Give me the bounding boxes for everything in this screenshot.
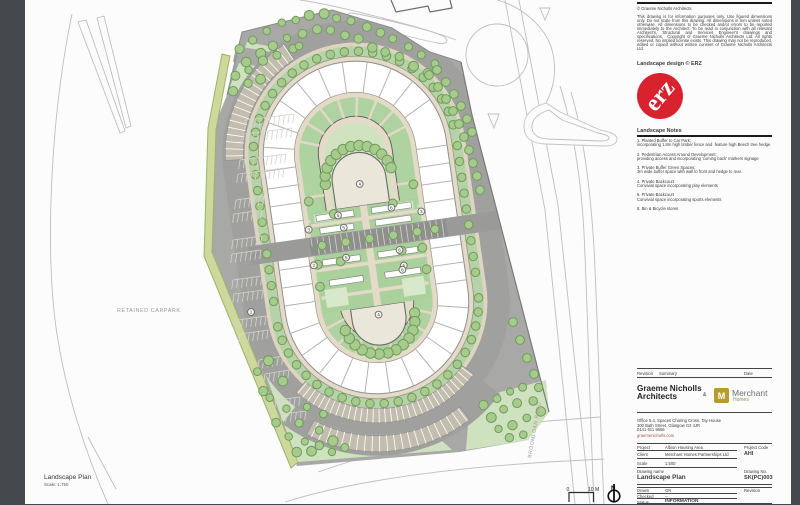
svg-text:0: 0 <box>567 487 570 493</box>
svg-text:RETAINED CARPARK: RETAINED CARPARK <box>117 308 181 314</box>
svg-text:N: N <box>611 485 616 492</box>
svg-text:10 M: 10 M <box>588 487 599 493</box>
